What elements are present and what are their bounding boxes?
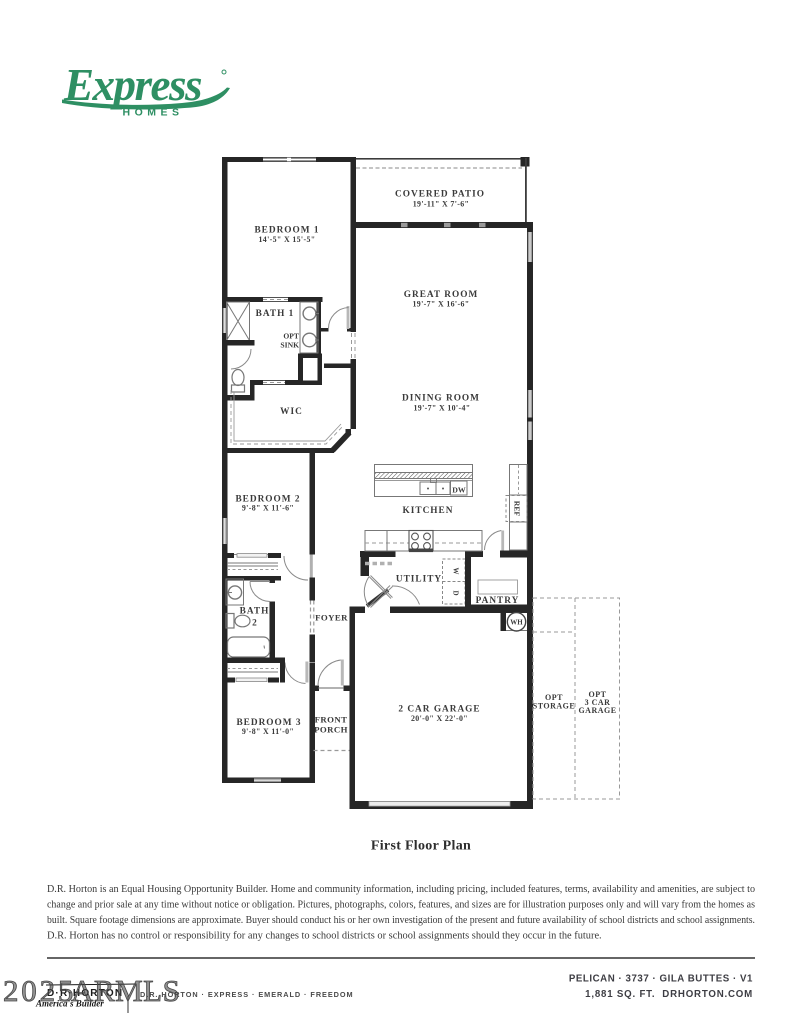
svg-text:UTILITY: UTILITY <box>396 575 442 585</box>
svg-text:14'-5" X 15'-5": 14'-5" X 15'-5" <box>259 235 316 244</box>
svg-text:change and prior sale at any t: change and prior sale at any time withou… <box>47 900 755 911</box>
svg-text:19'-7" X 10'-4": 19'-7" X 10'-4" <box>414 404 471 413</box>
svg-text:PORCH: PORCH <box>314 725 348 735</box>
svg-text:DINING ROOM: DINING ROOM <box>402 394 480 404</box>
svg-text:WH: WH <box>510 618 523 626</box>
svg-text:KITCHEN: KITCHEN <box>403 506 454 516</box>
svg-text:W: W <box>452 568 460 575</box>
svg-text:REF: REF <box>513 501 522 517</box>
svg-text:GARAGE: GARAGE <box>578 706 616 715</box>
svg-text:HOMES: HOMES <box>122 107 183 119</box>
svg-text:BEDROOM 1: BEDROOM 1 <box>254 226 319 236</box>
svg-text:2: 2 <box>252 619 258 629</box>
svg-text:PELICAN · 3737 · GILA BUTTES ·: PELICAN · 3737 · GILA BUTTES · V1 <box>569 974 753 985</box>
svg-text:ARMLS: ARMLS <box>71 973 180 1008</box>
svg-text:9'-8" X 11'-6": 9'-8" X 11'-6" <box>242 504 294 513</box>
svg-text:D.R. Horton is an Equal Housin: D.R. Horton is an Equal Housing Opportun… <box>47 884 755 895</box>
svg-text:1,881 SQ. FT. DRHORTON.COM: 1,881 SQ. FT. DRHORTON.COM <box>585 989 753 1000</box>
svg-text:SINK: SINK <box>280 341 299 350</box>
svg-text:built. Square footage dimensio: built. Square footage dimensions are app… <box>47 915 755 926</box>
svg-text:2 CAR GARAGE: 2 CAR GARAGE <box>398 705 480 715</box>
svg-text:D.R. Horton has no control or: D.R. Horton has no control or responsibi… <box>47 931 602 942</box>
svg-text:DW: DW <box>452 486 466 495</box>
svg-text:COVERED PATIO: COVERED PATIO <box>395 190 485 200</box>
svg-text:19'-7" X 16'-6": 19'-7" X 16'-6" <box>413 300 470 309</box>
svg-text:FOYER: FOYER <box>315 613 348 623</box>
svg-text:PANTRY: PANTRY <box>476 596 520 606</box>
svg-text:BATH 1: BATH 1 <box>256 309 295 319</box>
svg-text:BATH: BATH <box>240 607 270 617</box>
svg-text:D: D <box>452 590 460 595</box>
svg-text:19'-11" X 7'-6": 19'-11" X 7'-6" <box>413 200 470 209</box>
svg-text:FRONT: FRONT <box>315 715 348 725</box>
svg-text:First Floor Plan: First Floor Plan <box>371 839 471 854</box>
svg-text:WIC: WIC <box>280 407 303 417</box>
svg-text:STORAGE: STORAGE <box>533 702 575 711</box>
svg-text:9'-8" X 11'-0": 9'-8" X 11'-0" <box>242 727 294 736</box>
svg-text:GREAT ROOM: GREAT ROOM <box>404 290 478 300</box>
svg-text:20'-0" X 22'-0": 20'-0" X 22'-0" <box>411 714 468 723</box>
svg-text:2025: 2025 <box>3 973 76 1008</box>
svg-text:OPT: OPT <box>283 332 299 341</box>
